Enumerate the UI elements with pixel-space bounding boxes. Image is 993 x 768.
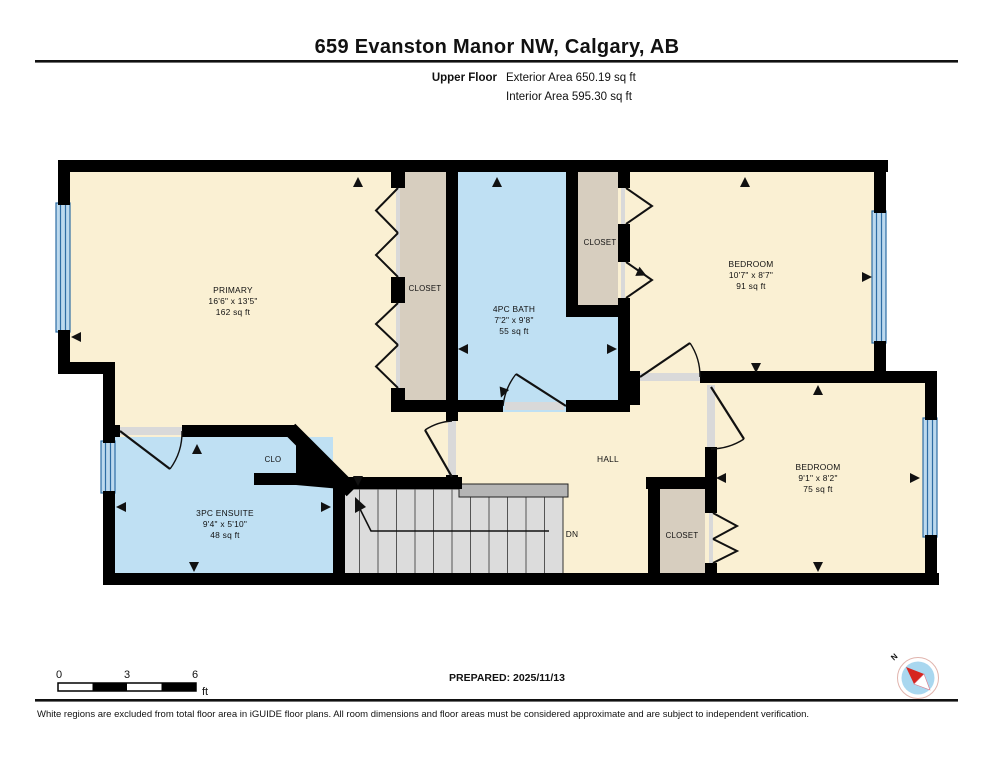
scale-tick-0: 0 <box>56 669 62 681</box>
floorplan-page: 659 Evanston Manor NW, Calgary, AB Upper… <box>0 0 993 768</box>
room-label-bath: 4PC BATH <box>493 304 535 314</box>
scale-tick-3: 3 <box>124 669 130 681</box>
prepared-date: PREPARED: 2025/11/13 <box>449 672 565 684</box>
room-label-closet-primary: CLOSET <box>409 284 442 293</box>
room-dims-bath: 7'2" x 9'8" <box>494 315 533 325</box>
scale-bar: 0 3 6 ft <box>56 669 208 698</box>
header-divider <box>35 60 958 63</box>
disclaimer-text: White regions are excluded from total fl… <box>37 709 809 720</box>
room-area-bedroom2: 75 sq ft <box>803 484 833 494</box>
room-label-bedroom2: BEDROOM <box>795 462 840 472</box>
window-ensuite-left <box>101 441 115 493</box>
compass-n-label: N <box>889 652 899 663</box>
footer-divider <box>35 699 958 702</box>
stair-railing <box>459 484 568 497</box>
floor-label: Upper Floor <box>432 72 498 84</box>
room-dims-bedroom1: 10'7" x 8'7" <box>729 270 773 280</box>
room-area-bath: 55 sq ft <box>499 326 529 336</box>
room-label-bedroom1: BEDROOM <box>728 259 773 269</box>
window-bedroom1-right <box>872 211 886 343</box>
stairs <box>341 484 568 577</box>
room-area-primary: 162 sq ft <box>216 307 251 317</box>
interior-area: Interior Area 595.30 sq ft <box>506 91 633 103</box>
floorplan-svg: 659 Evanston Manor NW, Calgary, AB Upper… <box>0 0 993 768</box>
room-label-primary: PRIMARY <box>213 285 253 295</box>
scale-unit: ft <box>202 686 208 698</box>
room-label-closet-top: CLOSET <box>584 238 617 247</box>
room-label-closet-bottom: CLOSET <box>666 531 699 540</box>
room-label-clo: CLO <box>265 455 282 464</box>
window-primary-left <box>56 203 70 332</box>
room-dims-ensuite: 9'4" x 5'10" <box>203 519 247 529</box>
room-label-hall: HALL <box>597 454 619 464</box>
page-title: 659 Evanston Manor NW, Calgary, AB <box>315 36 680 58</box>
compass-icon: N <box>889 652 938 699</box>
room-label-ensuite: 3PC ENSUITE <box>196 508 254 518</box>
stairs-dn-label: DN <box>566 529 579 539</box>
closet-top-floor <box>578 164 618 305</box>
room-dims-primary: 16'6" x 13'5" <box>208 296 257 306</box>
exterior-area: Exterior Area 650.19 sq ft <box>506 72 637 84</box>
window-bedroom2-right <box>923 418 937 537</box>
scale-tick-6: 6 <box>192 669 198 681</box>
room-area-ensuite: 48 sq ft <box>210 530 240 540</box>
room-dims-bedroom2: 9'1" x 8'2" <box>798 473 837 483</box>
room-area-bedroom1: 91 sq ft <box>736 281 766 291</box>
